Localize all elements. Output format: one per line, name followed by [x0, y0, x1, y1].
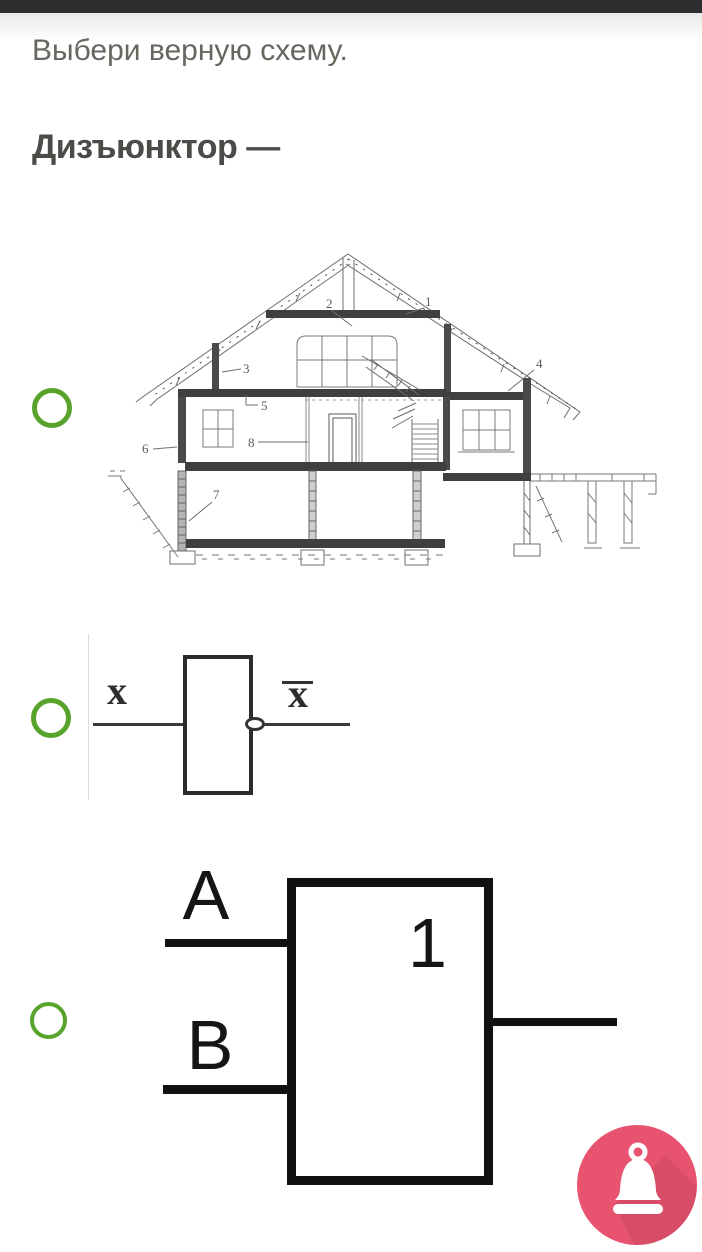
- svg-text:6: 6: [142, 441, 149, 456]
- attic-structure: [178, 310, 528, 400]
- top-bar: [0, 0, 702, 13]
- svg-text:1: 1: [425, 294, 432, 309]
- callout-labels: 2 1 3 4 5 6 7 8: [142, 294, 543, 521]
- or-gate-symbol: 1: [400, 908, 455, 978]
- image-left-border: [88, 634, 89, 800]
- quiz-page: { "question": { "prompt": "Выбери верную…: [0, 0, 702, 1209]
- svg-text:4: 4: [536, 356, 543, 371]
- or-gate-input-a-wire: [165, 939, 291, 947]
- svg-text:8: 8: [248, 435, 255, 450]
- svg-text:2: 2: [326, 296, 333, 311]
- footings: [170, 481, 540, 565]
- dormer-window: [297, 336, 397, 387]
- radio-option-or-gate[interactable]: [30, 1002, 67, 1039]
- radio-option-not-gate[interactable]: [31, 698, 71, 738]
- not-gate-input-wire: [93, 723, 184, 726]
- question-term: Дизъюнктор —: [32, 128, 280, 167]
- door: [329, 414, 356, 464]
- question-prompt: Выбери верную схему.: [32, 34, 348, 68]
- or-gate-output-wire: [492, 1018, 617, 1026]
- svg-text:5: 5: [261, 398, 268, 413]
- or-gate-input-b-label: B: [180, 1010, 240, 1080]
- radio-option-house[interactable]: [32, 388, 72, 428]
- staircase: [305, 356, 442, 467]
- interior-walls: [306, 397, 362, 462]
- not-gate-inversion-bubble: [245, 717, 265, 731]
- svg-text:7: 7: [213, 487, 220, 502]
- not-gate-input-label: x: [107, 671, 127, 711]
- option-image-house-blueprint: 2 1 3 4 5 6 7 8: [100, 248, 660, 583]
- bell-icon: [575, 1123, 699, 1247]
- not-gate-body: [183, 655, 253, 795]
- annex-window: [458, 410, 515, 452]
- or-gate-body: [287, 878, 493, 1185]
- or-gate-input-b-wire: [163, 1085, 291, 1094]
- house-cross-section-drawing: 2 1 3 4 5 6 7 8: [100, 248, 660, 583]
- svg-text:3: 3: [243, 361, 250, 376]
- not-gate-output-label: x: [288, 674, 308, 714]
- not-gate-output-wire: [264, 723, 350, 726]
- notification-bell-button[interactable]: [575, 1123, 699, 1209]
- left-window: [203, 410, 233, 447]
- or-gate-input-a-label: A: [176, 860, 236, 930]
